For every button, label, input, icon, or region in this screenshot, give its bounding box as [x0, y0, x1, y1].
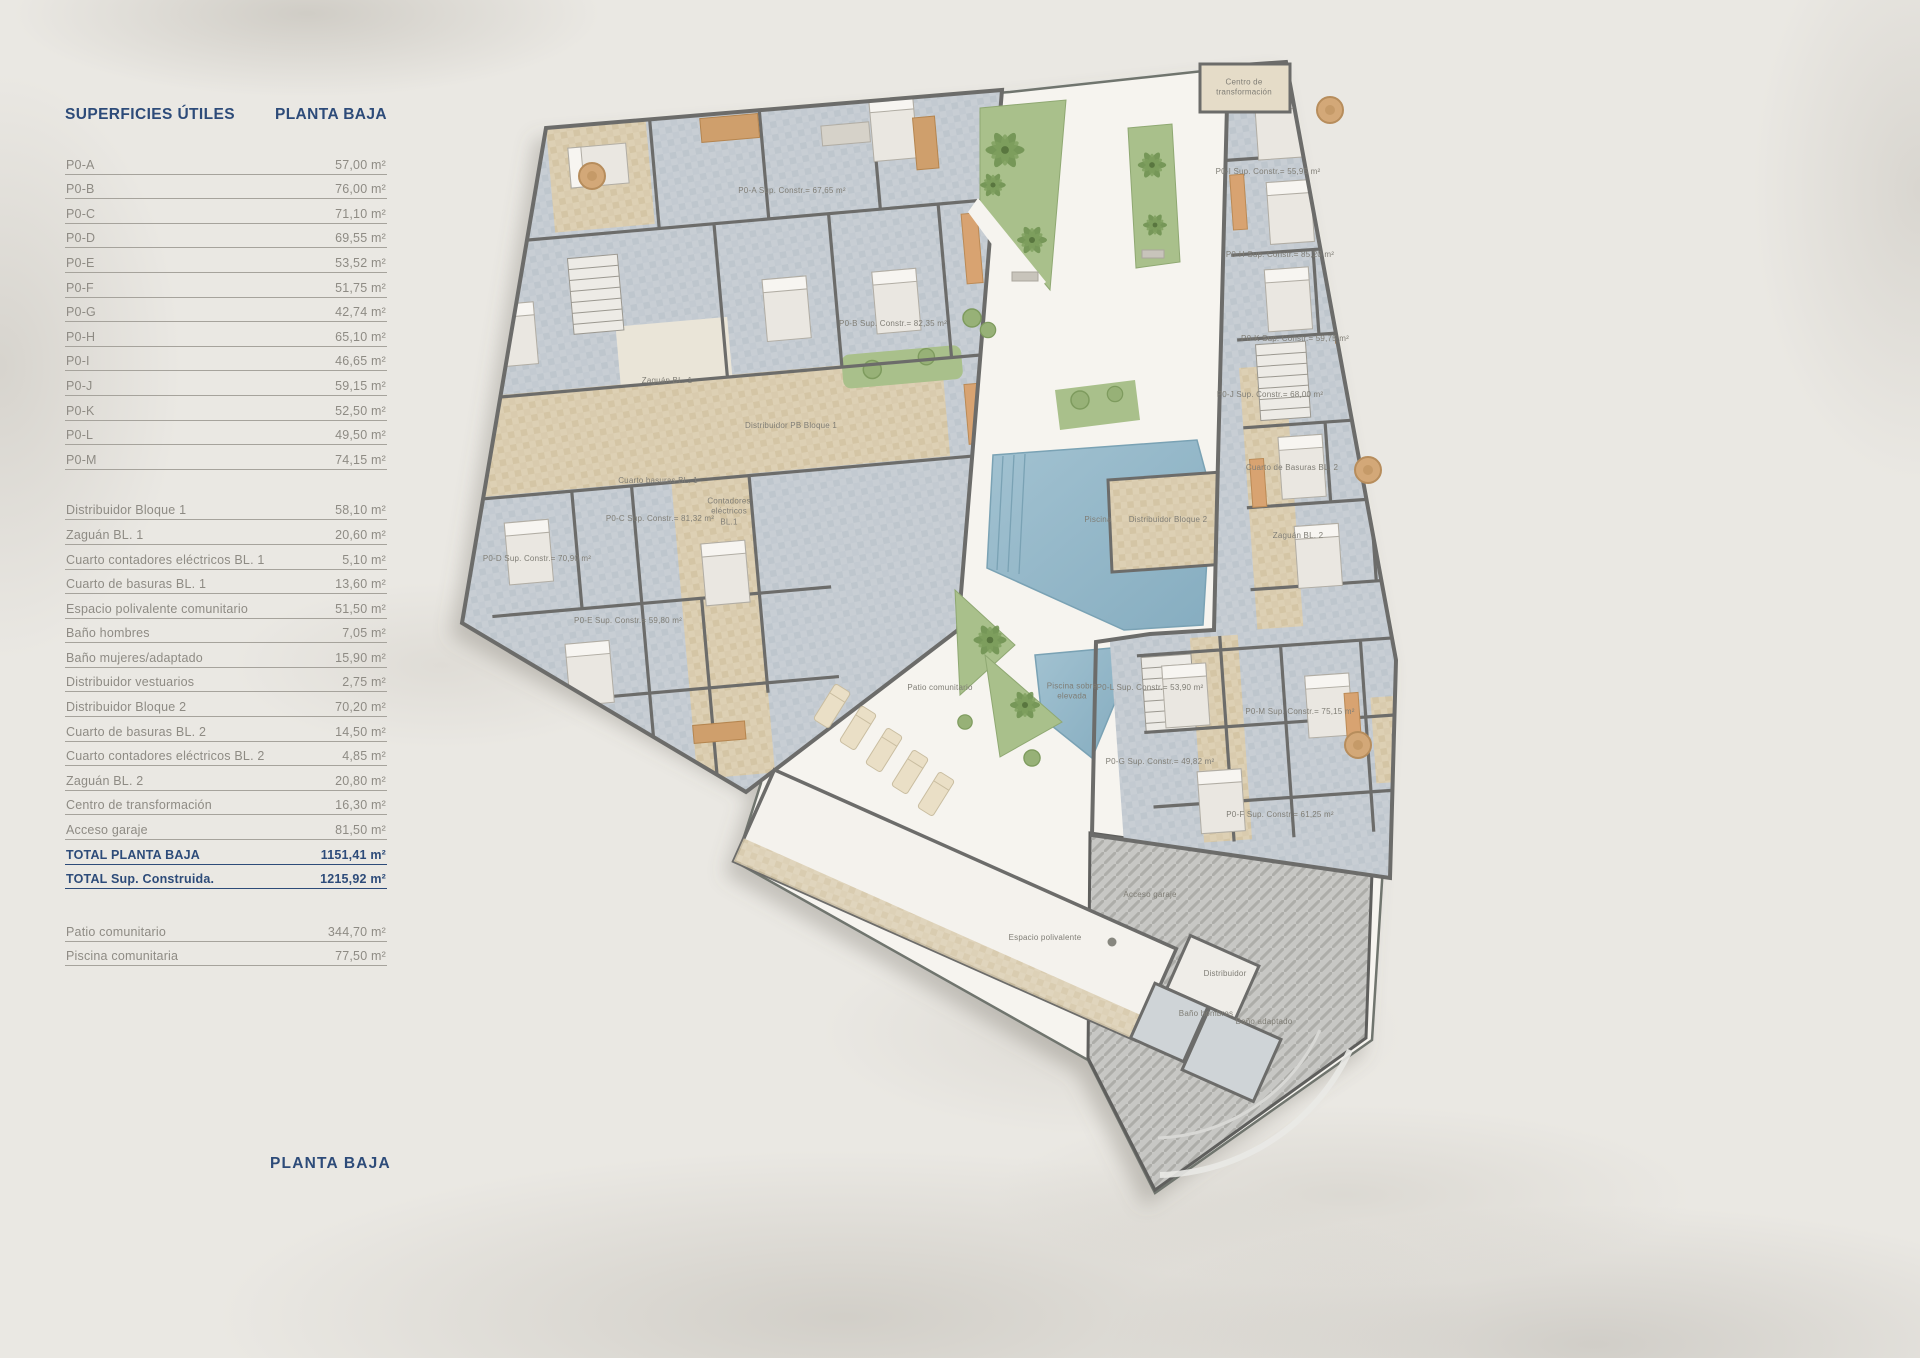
table-row: P0-K52,50 m²	[65, 396, 387, 421]
row-value: 14,50 m²	[335, 725, 386, 739]
row-label: TOTAL PLANTA BAJA	[66, 848, 200, 862]
table-row: Distribuidor Bloque 158,10 m²	[65, 496, 387, 521]
row-value: 77,50 m²	[335, 949, 386, 963]
table-row: Cuarto contadores eléctricos BL. 15,10 m…	[65, 545, 387, 570]
sheet-title: PLANTA BAJA	[270, 1155, 391, 1173]
transformer-room	[1200, 64, 1290, 112]
row-value: 69,55 m²	[335, 231, 386, 245]
row-label: Distribuidor Bloque 1	[66, 503, 186, 517]
table-row: Piscina comunitaria77,50 m²	[65, 942, 387, 967]
row-value: 4,85 m²	[342, 749, 386, 763]
plan-sheet: { "header": { "title_left": "SUPERFICIES…	[0, 0, 1920, 1358]
row-value: 70,20 m²	[335, 700, 386, 714]
row-label: Cuarto contadores eléctricos BL. 2	[66, 749, 265, 763]
row-value: 58,10 m²	[335, 503, 386, 517]
row-label: Distribuidor vestuarios	[66, 675, 194, 689]
table-row: TOTAL Sup. Construida.1215,92 m²	[65, 865, 387, 890]
row-label: P0-K	[66, 404, 95, 418]
row-value: 16,30 m²	[335, 798, 386, 812]
table-row: P0-G42,74 m²	[65, 298, 387, 323]
table-row: Distribuidor Bloque 270,20 m²	[65, 692, 387, 717]
row-label: P0-I	[66, 354, 90, 368]
row-label: P0-E	[66, 256, 95, 270]
row-label: P0-M	[66, 453, 97, 467]
row-label: TOTAL Sup. Construida.	[66, 872, 214, 886]
table-row: P0-E53,52 m²	[65, 248, 387, 273]
block-2-lobby	[1108, 472, 1226, 572]
table-row: Acceso garaje81,50 m²	[65, 815, 387, 840]
row-value: 1151,41 m²	[321, 848, 386, 862]
row-label: Distribuidor Bloque 2	[66, 700, 186, 714]
row-label: Zaguán BL. 2	[66, 774, 143, 788]
row-label: Espacio polivalente comunitario	[66, 602, 248, 616]
table-title: SUPERFICIES ÚTILES	[65, 106, 235, 124]
row-label: Cuarto de basuras BL. 2	[66, 725, 206, 739]
table-row: P0-B76,00 m²	[65, 175, 387, 200]
table-row: P0-J59,15 m²	[65, 371, 387, 396]
row-label: P0-D	[66, 231, 95, 245]
table-row: Baño mujeres/adaptado15,90 m²	[65, 643, 387, 668]
row-value: 344,70 m²	[328, 925, 386, 939]
row-label: Acceso garaje	[66, 823, 148, 837]
table-row: P0-M74,15 m²	[65, 445, 387, 470]
row-label: Cuarto contadores eléctricos BL. 1	[66, 553, 265, 567]
row-value: 20,60 m²	[335, 528, 386, 542]
row-label: Baño mujeres/adaptado	[66, 651, 203, 665]
row-value: 76,00 m²	[335, 182, 386, 196]
table-row: Centro de transformación16,30 m²	[65, 791, 387, 816]
row-value: 52,50 m²	[335, 404, 386, 418]
row-label: Cuarto de basuras BL. 1	[66, 577, 206, 591]
table-row: P0-I46,65 m²	[65, 347, 387, 372]
row-label: P0-F	[66, 281, 94, 295]
row-label: P0-G	[66, 305, 96, 319]
table-section-outdoor: Patio comunitario344,70 m²Piscina comuni…	[65, 917, 387, 966]
table-row: P0-D69,55 m²	[65, 224, 387, 249]
row-label: Centro de transformación	[66, 798, 212, 812]
row-label: Zaguán BL. 1	[66, 528, 143, 542]
row-value: 42,74 m²	[335, 305, 386, 319]
row-value: 15,90 m²	[335, 651, 386, 665]
row-label: Baño hombres	[66, 626, 150, 640]
table-row: P0-H65,10 m²	[65, 322, 387, 347]
table-row: Distribuidor vestuarios2,75 m²	[65, 668, 387, 693]
row-value: 57,00 m²	[335, 158, 386, 172]
table-subtitle: PLANTA BAJA	[275, 106, 387, 124]
row-label: P0-C	[66, 207, 95, 221]
row-label: Piscina comunitaria	[66, 949, 178, 963]
table-row: Cuarto de basuras BL. 214,50 m²	[65, 717, 387, 742]
row-value: 65,10 m²	[335, 330, 386, 344]
row-value: 46,65 m²	[335, 354, 386, 368]
table-row: P0-A57,00 m²	[65, 150, 387, 175]
table-body: P0-A57,00 m²P0-B76,00 m²P0-C71,10 m²P0-D…	[65, 150, 387, 966]
row-value: 74,15 m²	[335, 453, 386, 467]
table-row: Cuarto contadores eléctricos BL. 24,85 m…	[65, 742, 387, 767]
row-label: P0-J	[66, 379, 93, 393]
table-section-apartments: P0-A57,00 m²P0-B76,00 m²P0-C71,10 m²P0-D…	[65, 150, 387, 470]
row-value: 51,75 m²	[335, 281, 386, 295]
table-row: Patio comunitario344,70 m²	[65, 917, 387, 942]
row-value: 2,75 m²	[342, 675, 386, 689]
row-value: 71,10 m²	[335, 207, 386, 221]
row-value: 81,50 m²	[335, 823, 386, 837]
table-row: P0-F51,75 m²	[65, 273, 387, 298]
table-row: Zaguán BL. 120,60 m²	[65, 520, 387, 545]
row-value: 49,50 m²	[335, 428, 386, 442]
row-label: P0-L	[66, 428, 93, 442]
row-value: 13,60 m²	[335, 577, 386, 591]
row-value: 59,15 m²	[335, 379, 386, 393]
row-label: Patio comunitario	[66, 925, 166, 939]
row-value: 20,80 m²	[335, 774, 386, 788]
row-value: 53,52 m²	[335, 256, 386, 270]
table-row: Zaguán BL. 220,80 m²	[65, 766, 387, 791]
table-row: Baño hombres7,05 m²	[65, 619, 387, 644]
table-row: Espacio polivalente comunitario51,50 m²	[65, 594, 387, 619]
table-row: P0-L49,50 m²	[65, 421, 387, 446]
row-value: 5,10 m²	[342, 553, 386, 567]
table-row: P0-C71,10 m²	[65, 199, 387, 224]
table-section-common: Distribuidor Bloque 158,10 m²Zaguán BL. …	[65, 496, 387, 840]
surface-table: SUPERFICIES ÚTILES PLANTA BAJA P0-A57,00…	[65, 106, 387, 966]
table-row: Cuarto de basuras BL. 113,60 m²	[65, 570, 387, 595]
row-value: 1215,92 m²	[320, 872, 386, 886]
row-label: P0-H	[66, 330, 95, 344]
table-header: SUPERFICIES ÚTILES PLANTA BAJA	[65, 106, 387, 124]
row-value: 51,50 m²	[335, 602, 386, 616]
table-section-totals: TOTAL PLANTA BAJA1151,41 m²TOTAL Sup. Co…	[65, 840, 387, 889]
row-label: P0-A	[66, 158, 95, 172]
row-label: P0-B	[66, 182, 95, 196]
row-value: 7,05 m²	[342, 626, 386, 640]
table-row: TOTAL PLANTA BAJA1151,41 m²	[65, 840, 387, 865]
